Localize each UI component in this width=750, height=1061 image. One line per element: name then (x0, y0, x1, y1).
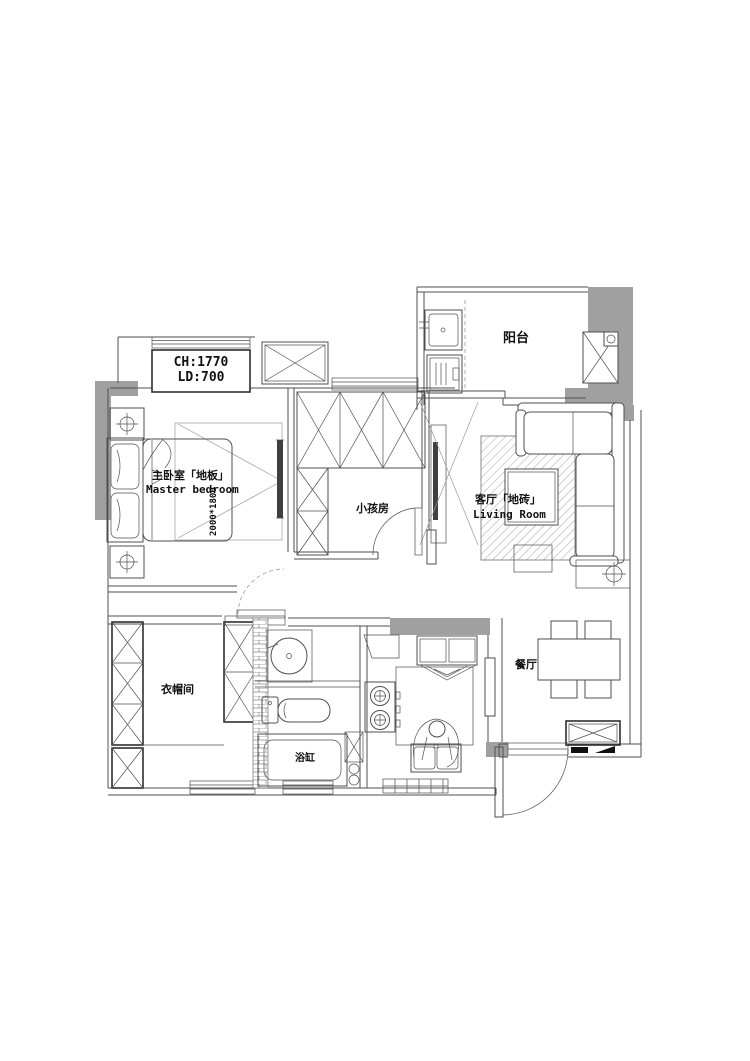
shoe-cabinet-icon (566, 721, 620, 745)
dining-room: 餐厅 (514, 621, 620, 753)
kitchen-sink-icon (411, 744, 461, 772)
kids-room: 小孩房 (297, 392, 478, 555)
laundry-sink-icon (419, 310, 462, 350)
stove-icon (365, 682, 400, 732)
living-room: 客厅「地砖」 Living Room (473, 403, 630, 588)
balcony: 阳台 (419, 300, 529, 393)
floor-plan: CH:1770 LD:700 阳台 (0, 0, 750, 1061)
nightstand-icon (110, 408, 144, 440)
nightstand-icon (110, 546, 144, 578)
wardrobe-top-icon (297, 392, 425, 468)
master-door-leaf (237, 610, 285, 618)
person-figure-icon (413, 719, 458, 767)
kids-room-label: 小孩房 (355, 501, 389, 515)
toilet-icon (262, 697, 330, 723)
top-closet-icon (262, 342, 328, 384)
ceiling-note: CH:1770 LD:700 (152, 350, 250, 392)
bathroom: 浴缸 (253, 618, 363, 788)
ceiling-note-line1: CH:1770 (174, 355, 229, 370)
tiled-wall (253, 618, 268, 788)
corner-cabinet-icon (364, 635, 399, 658)
corridor-doors (225, 569, 285, 625)
wardrobe-left-icon (297, 468, 328, 555)
master-bedroom-label-zh: 主卧室「地板」 (152, 468, 229, 482)
bathtub-label: 浴缸 (295, 751, 315, 764)
living-room-label-en: Living Room (473, 508, 546, 521)
cloakroom: 衣帽间 (112, 622, 255, 788)
dining-set-icon (538, 621, 620, 698)
wardrobe-column-left-icon (112, 622, 143, 788)
balcony-label: 阳台 (503, 330, 529, 346)
washing-machine-icon (427, 355, 462, 393)
dining-room-label: 餐厅 (514, 657, 537, 671)
window-master-top (152, 337, 250, 348)
bed-size-label: 2000*1800 (209, 487, 219, 536)
fridge-icon (417, 636, 477, 680)
tv-master-icon (276, 440, 284, 518)
living-room-label-zh: 客厅「地砖」 (474, 492, 541, 506)
threshold-arrow (595, 746, 615, 753)
cloakroom-label: 衣帽间 (161, 682, 194, 696)
washbasin-icon (267, 630, 312, 682)
threshold-mark (571, 747, 588, 753)
tv-living-icon (431, 425, 446, 543)
ceiling-note-line2: LD:700 (178, 370, 225, 385)
master-bedroom: 主卧室「地板」 Master bedroom 2000*1800 (107, 408, 284, 578)
kids-room-door (373, 508, 422, 555)
wardrobe-column-right-icon (224, 622, 255, 722)
door-swing (503, 749, 568, 815)
master-bedroom-label-en: Master bedroom (146, 483, 239, 496)
master-door-swing (238, 569, 284, 614)
flue-duct-icon (583, 332, 618, 383)
windows (152, 337, 448, 794)
window-kitchen-bottom (383, 779, 448, 793)
kitchen (364, 635, 477, 772)
